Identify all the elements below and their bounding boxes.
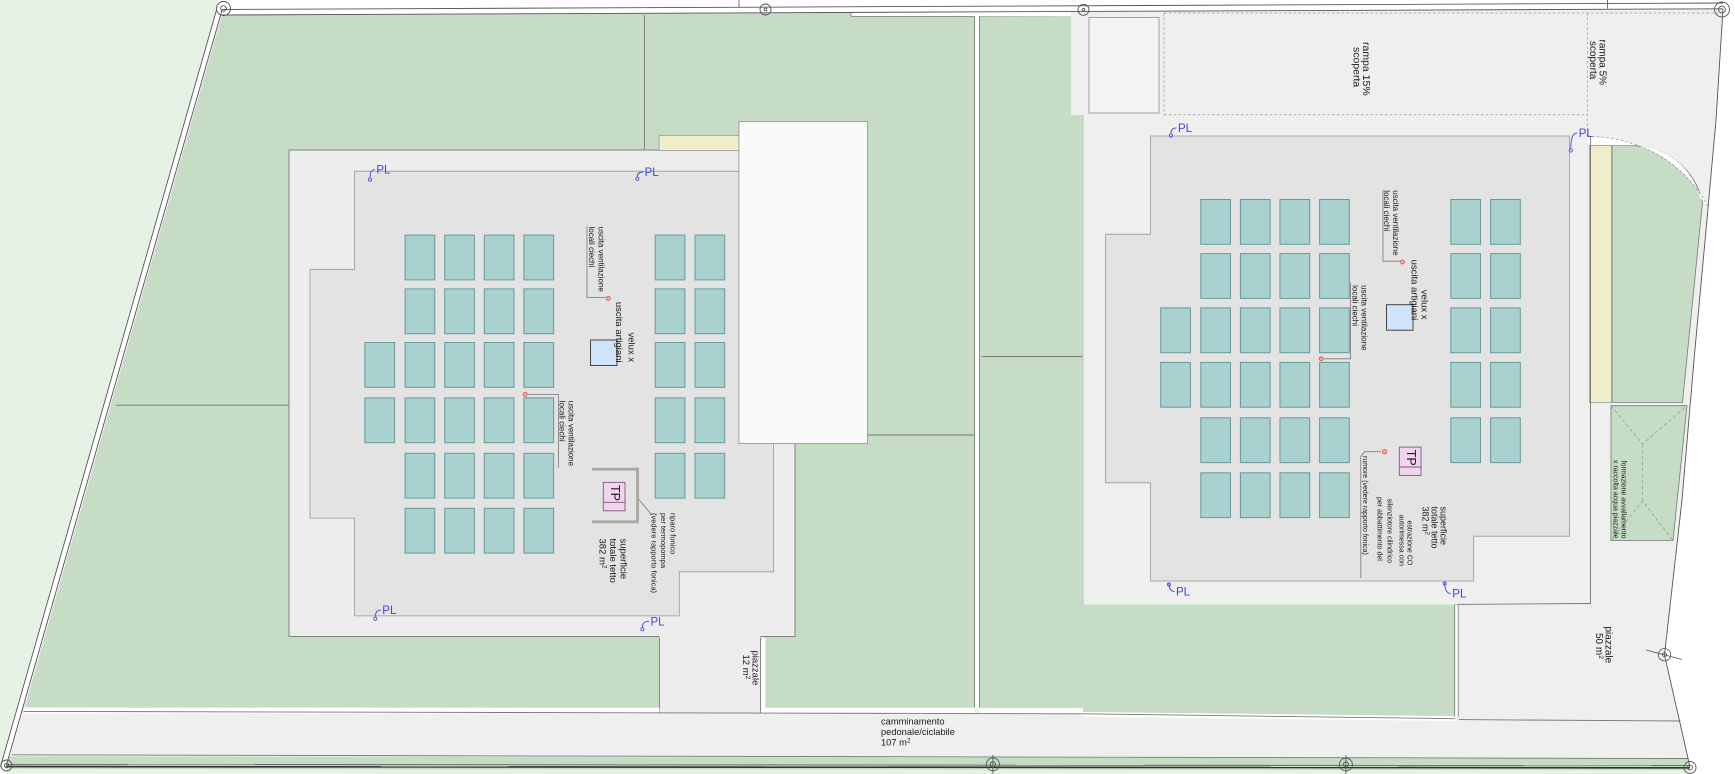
svg-text:totale tetto: totale tetto bbox=[607, 539, 618, 583]
svg-text:uscita ventilazione: uscita ventilazione bbox=[597, 227, 606, 293]
svg-text:silenziotore cilindrico: silenziotore cilindrico bbox=[1386, 499, 1393, 564]
svg-text:locali ciechi: locali ciechi bbox=[558, 401, 567, 442]
svg-text:scoperta: scoperta bbox=[1351, 47, 1363, 87]
svg-text:PL: PL bbox=[645, 167, 660, 179]
svg-text:PL: PL bbox=[382, 605, 397, 617]
svg-text:locali ciechi: locali ciechi bbox=[1351, 285, 1360, 326]
svg-text:uscita artigiani: uscita artigiani bbox=[1409, 260, 1420, 321]
svg-text:PL: PL bbox=[651, 616, 666, 628]
svg-text:x raccolta acqua piazzale: x raccolta acqua piazzale bbox=[1612, 460, 1619, 539]
svg-text:velux x: velux x bbox=[625, 333, 636, 363]
svg-text:TP: TP bbox=[1404, 450, 1418, 466]
svg-text:locali ciechi: locali ciechi bbox=[1382, 190, 1391, 231]
svg-text:formazione avvallamento: formazione avvallamento bbox=[1620, 461, 1627, 539]
svg-text:TP: TP bbox=[608, 485, 622, 501]
svg-text:scoperta: scoperta bbox=[1587, 41, 1598, 80]
svg-text:PL: PL bbox=[376, 165, 391, 177]
svg-text:superficie: superficie bbox=[618, 539, 629, 580]
svg-text:uscita ventilazione: uscita ventilazione bbox=[1360, 285, 1369, 351]
svg-text:per abbattimento del: per abbattimento del bbox=[1376, 497, 1383, 561]
svg-text:382 m2: 382 m2 bbox=[597, 539, 608, 569]
svg-text:estrazione CO: estrazione CO bbox=[1406, 521, 1413, 566]
svg-text:uscita artigiani: uscita artigiani bbox=[613, 302, 624, 363]
svg-text:PL: PL bbox=[1178, 123, 1193, 135]
svg-text:PL: PL bbox=[1176, 587, 1191, 599]
svg-text:(vedere rapporto fonica): (vedere rapporto fonica) bbox=[649, 513, 658, 594]
svg-text:PL: PL bbox=[1452, 589, 1467, 601]
svg-text:uscita ventilazione: uscita ventilazione bbox=[567, 401, 576, 467]
svg-text:per termopompa: per termopompa bbox=[659, 513, 668, 569]
svg-text:autorimessa con: autorimessa con bbox=[1398, 515, 1405, 566]
svg-text:PL: PL bbox=[1579, 128, 1594, 140]
svg-text:uscita ventilazione: uscita ventilazione bbox=[1391, 190, 1400, 256]
svg-text:382 m2: 382 m2 bbox=[1421, 507, 1431, 536]
svg-text:locali ciechi: locali ciechi bbox=[587, 227, 596, 268]
svg-text:rumore (vedere rapporto fonica: rumore (vedere rapporto fonica) bbox=[1361, 456, 1368, 555]
svg-text:riparo fonico: riparo fonico bbox=[669, 513, 678, 554]
